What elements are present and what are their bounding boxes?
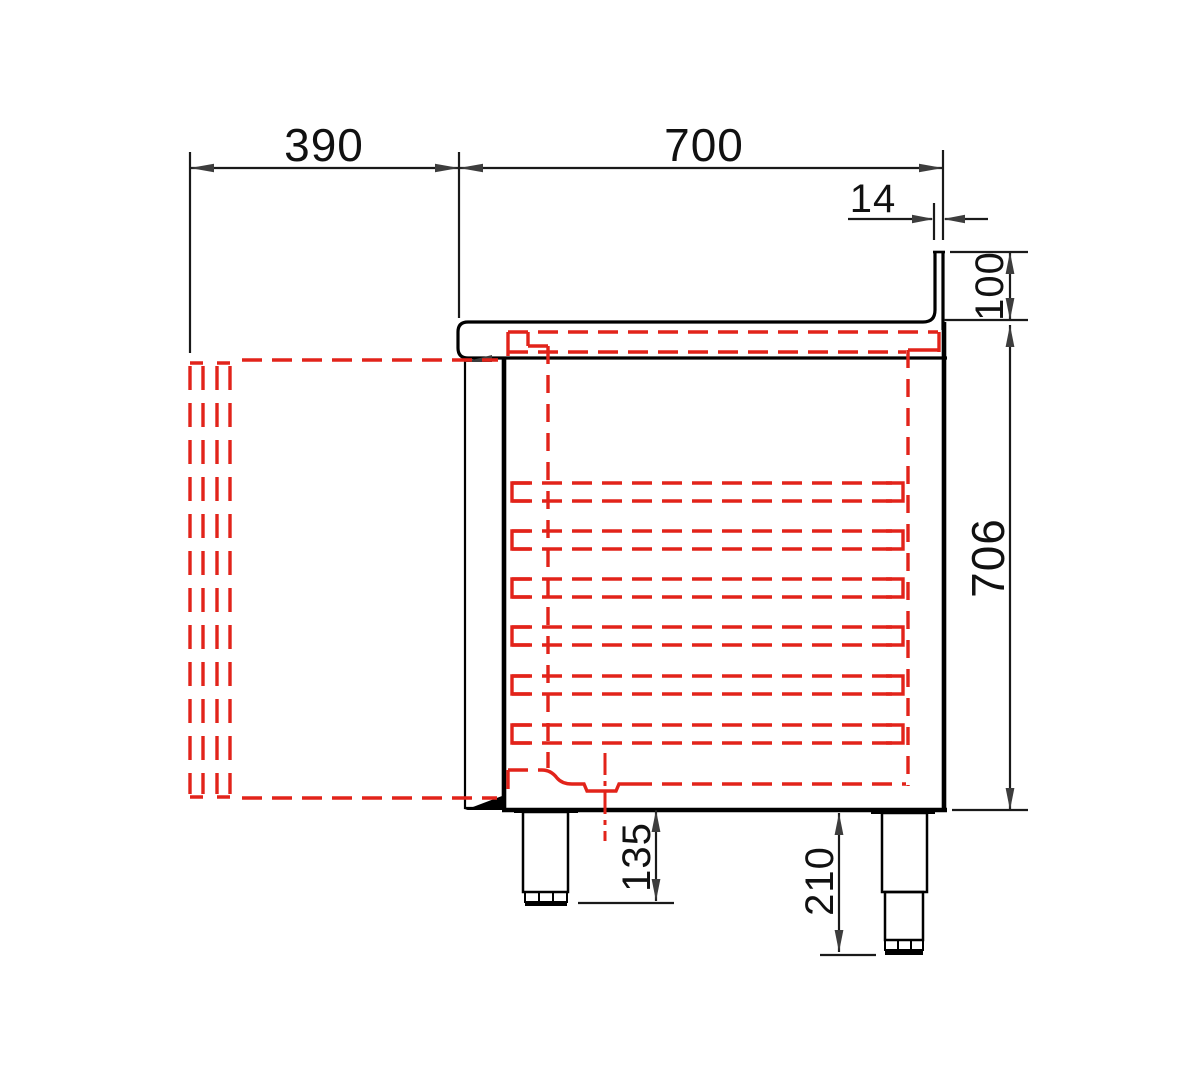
dimension-210: 210 (798, 813, 876, 955)
arrow-706-down (1006, 788, 1015, 810)
dimension-706: 706 (952, 325, 1028, 810)
cabinet-body (502, 322, 947, 810)
left-leg-foot (525, 892, 567, 902)
open-door-faces (190, 366, 230, 794)
shelf-rail (512, 676, 903, 694)
arrow-14-right (943, 215, 965, 223)
dim-backsplash-thickness-label: 14 (850, 177, 897, 221)
dimension-100: 100 (944, 251, 1028, 321)
door-closed (464, 355, 502, 810)
right-leg (871, 808, 935, 955)
liner-bottom-slope (542, 770, 572, 784)
arrow-left-out (190, 164, 214, 172)
arrow-210-up (835, 813, 844, 835)
shelf-rail (512, 725, 903, 743)
dimension-135: 135 (578, 810, 674, 903)
right-leg-body (882, 813, 927, 892)
inner-liner (508, 332, 939, 841)
arrow-14-left (912, 215, 934, 223)
shelf-rails (512, 483, 903, 743)
dimension-390-700: 390 700 (190, 119, 943, 353)
dim-backsplash-height-label: 100 (968, 251, 1012, 321)
shelf-rail (512, 483, 903, 501)
drawing-canvas: 390 700 14 100 706 135 210 (0, 0, 1200, 1080)
open-door-caps (190, 363, 230, 797)
right-foot-detail (898, 940, 911, 950)
arrow-706-up (1006, 325, 1015, 347)
right-leg-foot (885, 940, 923, 950)
door-open-dashed (190, 360, 498, 798)
arrow-mid-right (435, 164, 459, 172)
dim-body-height-label: 706 (962, 518, 1014, 598)
arrow-210-down (835, 930, 844, 952)
shelf-rail (512, 531, 903, 549)
arrow-mid-left (459, 164, 483, 172)
worktop-outline (458, 252, 947, 358)
dim-leg-height-max-label: 210 (798, 846, 842, 916)
dim-body-depth-label: 700 (664, 119, 744, 171)
shelf-rail (512, 627, 903, 645)
drain-cup (572, 784, 632, 791)
technical-drawing: 390 700 14 100 706 135 210 (0, 0, 1200, 1080)
left-leg-body (523, 812, 568, 892)
right-foot-base (885, 949, 923, 955)
dim-door-open-depth-label: 390 (284, 119, 364, 171)
dim-leg-height-min-label: 135 (615, 822, 659, 892)
left-foot-detail (539, 892, 553, 902)
door-panel (465, 360, 502, 808)
right-leg-extension (885, 892, 923, 940)
left-foot-base (525, 901, 567, 906)
dimension-14: 14 (848, 177, 988, 240)
arrow-right-out (919, 164, 943, 172)
worktop (458, 252, 947, 358)
shelf-rail (512, 579, 903, 597)
left-leg (514, 808, 578, 906)
